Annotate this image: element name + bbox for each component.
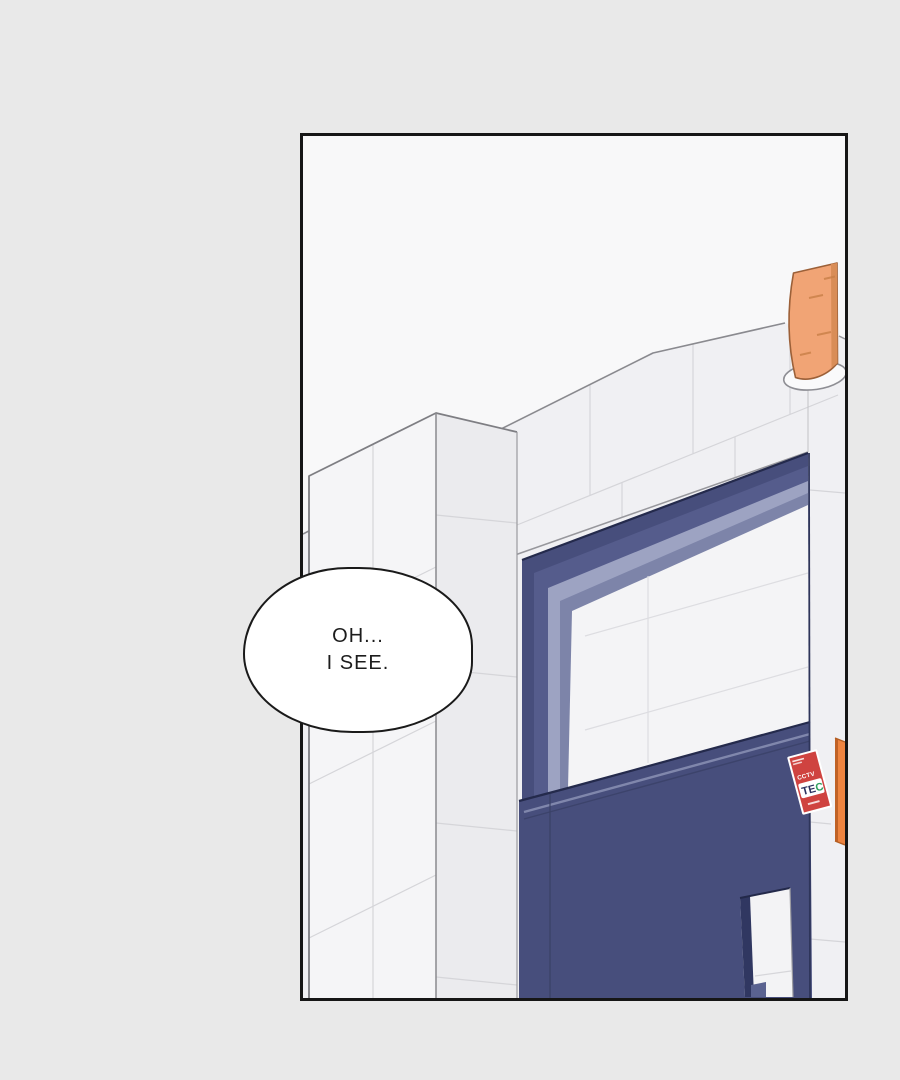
speech-bubble: OH... I SEE. xyxy=(243,567,473,733)
lamp-body-shade xyxy=(831,263,838,368)
comic-panel: CCTV TEC xyxy=(300,133,848,1001)
door-opening xyxy=(740,888,793,997)
scene-illustration: CCTV TEC xyxy=(303,136,845,998)
lamp-body xyxy=(789,263,837,379)
wall-lamp xyxy=(782,263,845,394)
speech-text-line-2: I SEE. xyxy=(327,650,390,677)
speech-text-line-1: OH... xyxy=(332,623,384,650)
orange-sign xyxy=(835,738,845,845)
